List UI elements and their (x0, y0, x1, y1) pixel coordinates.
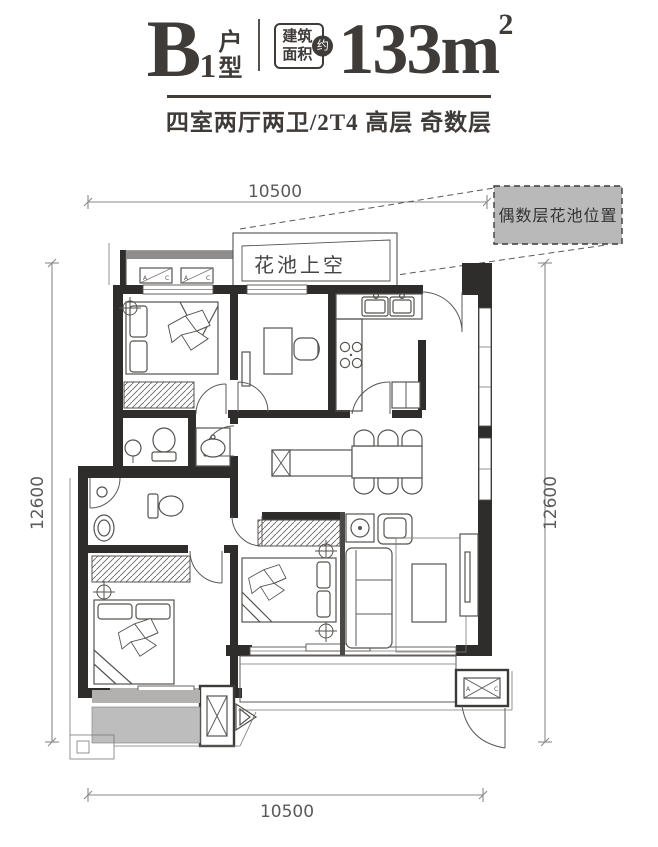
flower-pool-void-label: 花池上空 (254, 253, 346, 277)
balcony-door-icon (462, 706, 505, 748)
double-bed-icon (242, 558, 336, 622)
floorplan-page: B 1 户 型 建筑 面积 约 133m 2 四室两厅两卫/2T4 高层 奇数层 (0, 0, 658, 847)
bedroom-top-left (119, 297, 218, 408)
dim-top-value: 10500 (248, 182, 302, 202)
even-floor-note-label: 偶数层花池位置 (498, 206, 617, 225)
floor-drain-icon (97, 487, 107, 497)
toilet-icon (152, 428, 176, 461)
wardrobe-icon (92, 556, 190, 582)
bathroom-2 (94, 487, 183, 541)
dim-right-value: 12600 (541, 476, 561, 530)
wardrobe-icon (124, 382, 194, 408)
island-counter-icon (272, 450, 352, 476)
dim-left-value: 12600 (28, 476, 48, 530)
dimension-top: 10500 (84, 182, 491, 209)
living-room (346, 514, 478, 652)
dining-table-icon (352, 446, 422, 478)
wardrobe-icon (258, 520, 340, 546)
kitchen (336, 294, 422, 411)
study-room (242, 328, 319, 386)
toilet-icon (148, 494, 183, 518)
ac-platform (200, 686, 256, 746)
sofa-icon (346, 548, 392, 648)
dimension-right: 12600 (538, 259, 561, 746)
upper-balcony: A C A C (109, 243, 234, 287)
dim-bottom-value: 10500 (260, 802, 314, 822)
coffee-table-icon (412, 564, 446, 622)
kitchen-sink-icon (362, 294, 414, 316)
pedestal-sink-icon (125, 440, 141, 463)
stove-icon (340, 342, 361, 367)
flower-pool-void: 花池上空 (233, 233, 397, 287)
column-symbol (315, 620, 337, 642)
bedroom-middle (242, 520, 340, 642)
ac-unit-icon: A C (456, 670, 508, 706)
desk-icon (264, 328, 292, 374)
fridge-icon (392, 382, 420, 408)
dining-area (272, 430, 422, 494)
double-bed-icon (126, 302, 218, 374)
floor-plan: 10500 10500 12600 12600 偶数层花池位置 (0, 0, 658, 847)
dimension-left: 12600 (28, 259, 59, 746)
svg-text:C: C (206, 275, 210, 282)
pedestal-sink-icon (94, 515, 114, 541)
bedroom-bottom-left (92, 556, 190, 684)
dimension-bottom: 10500 (84, 788, 487, 822)
svg-text:C: C (494, 686, 498, 693)
double-bed-icon (94, 600, 174, 684)
right-wall-windows (479, 308, 491, 500)
vanity-sink-icon (196, 428, 230, 466)
floor-lamp-icon (346, 514, 374, 542)
armchair-icon (378, 514, 412, 544)
chair-icon (294, 338, 319, 360)
svg-text:C: C (165, 275, 169, 282)
tv-cabinet-icon (460, 534, 478, 616)
